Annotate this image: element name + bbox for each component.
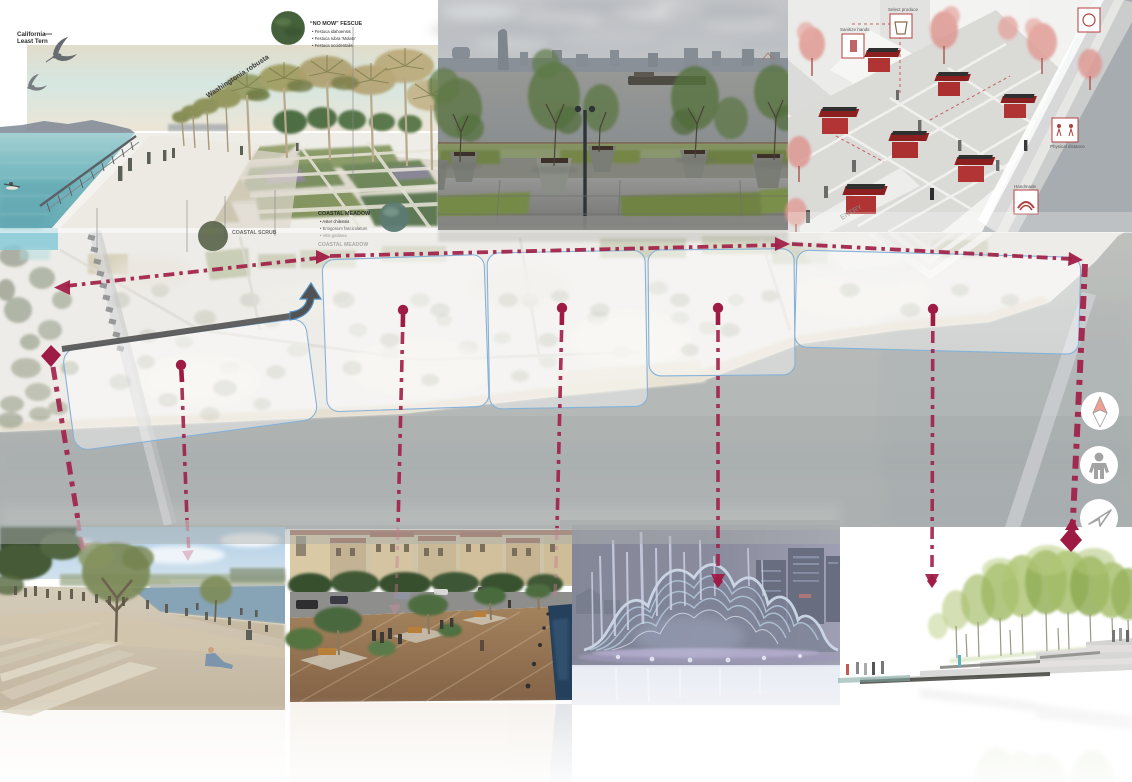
svg-text:• Eriogonum fasciculatum: • Eriogonum fasciculatum bbox=[320, 226, 368, 231]
svg-text:Least Tern: Least Tern bbox=[17, 38, 48, 45]
svg-text:• Festuca idahoensis: • Festuca idahoensis bbox=[312, 29, 351, 34]
svg-text:• Aster chilensis: • Aster chilensis bbox=[320, 219, 349, 224]
svg-text:COASTAL MEADOW: COASTAL MEADOW bbox=[318, 242, 368, 248]
svg-text:• Festuca occidentalis: • Festuca occidentalis bbox=[312, 43, 353, 48]
svg-text:“NO MOW” FESCUE: “NO MOW” FESCUE bbox=[310, 21, 363, 27]
svg-text:California: California bbox=[17, 31, 46, 38]
svg-text:COASTAL MEADOW: COASTAL MEADOW bbox=[318, 211, 371, 217]
svg-text:Select produce: Select produce bbox=[888, 7, 919, 12]
svg-text:COASTAL SCRUB: COASTAL SCRUB bbox=[232, 230, 277, 236]
svg-text:• Festuca rubra ‘Molate’: • Festuca rubra ‘Molate’ bbox=[312, 36, 356, 41]
svg-text:Physical distance: Physical distance bbox=[1050, 144, 1085, 149]
svg-text:• Vitis girdiana: • Vitis girdiana bbox=[320, 233, 347, 238]
svg-text:Handmade: Handmade bbox=[1014, 184, 1037, 189]
svg-text:Sanitize hands: Sanitize hands bbox=[840, 27, 870, 32]
